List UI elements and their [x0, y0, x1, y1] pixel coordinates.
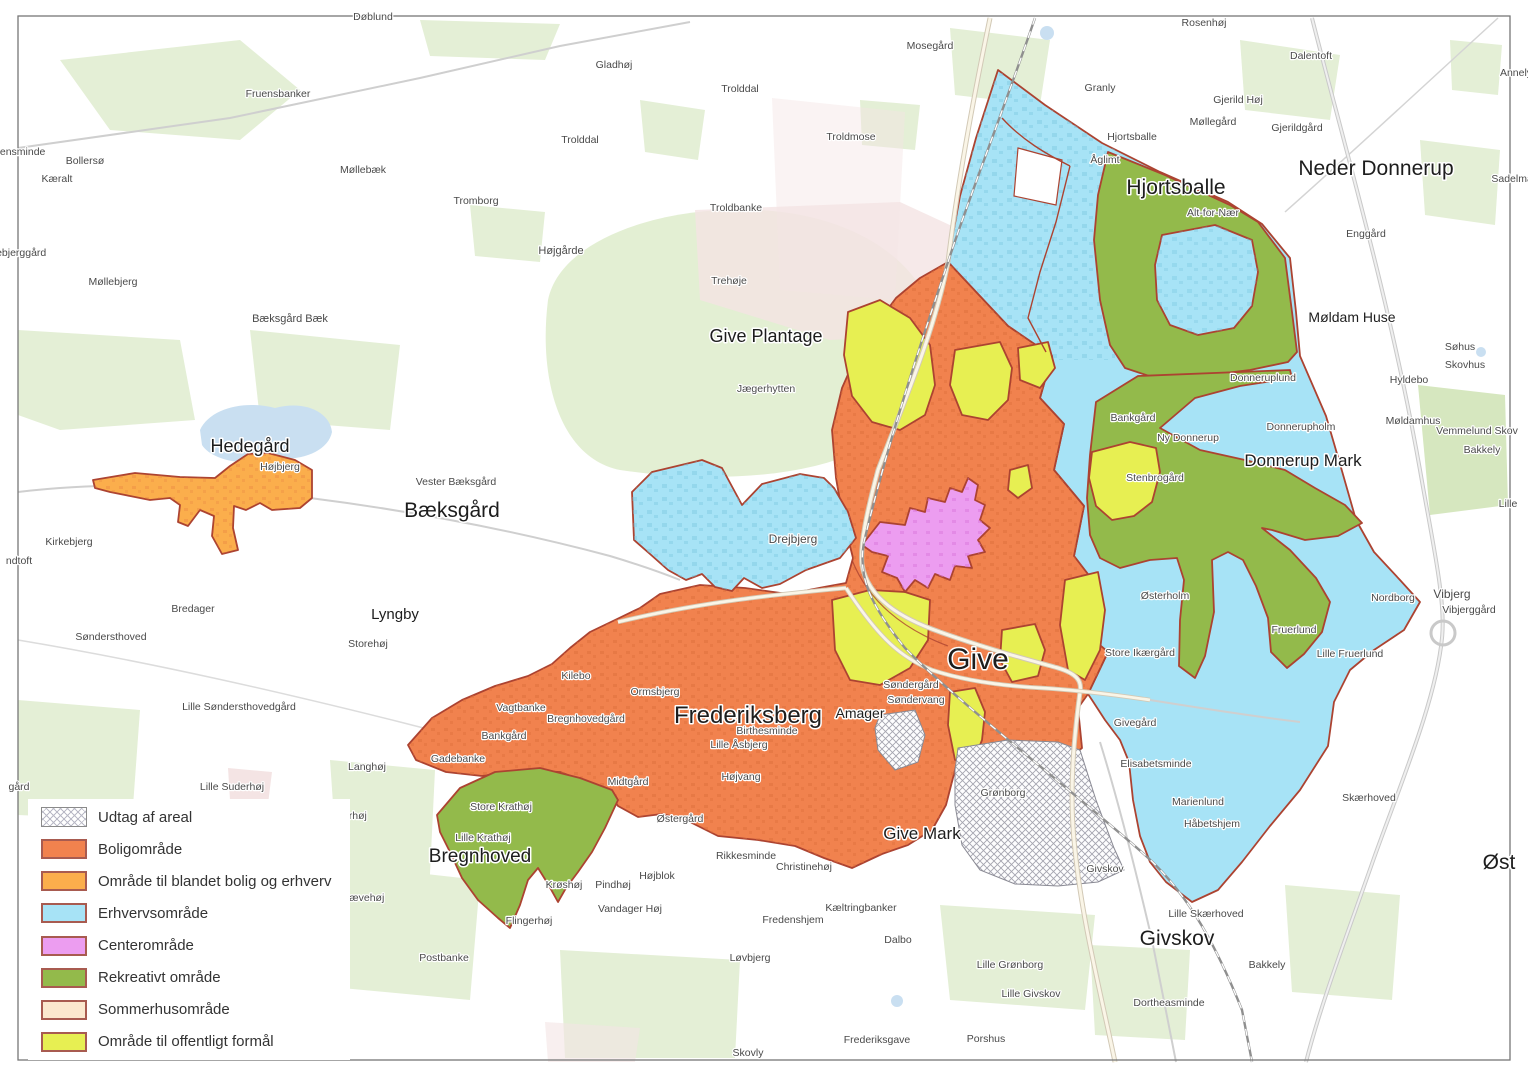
- place-label: Givskov: [1086, 863, 1124, 875]
- place-label: Hedegård: [210, 436, 289, 456]
- place-label: Lille Krathøj: [455, 832, 510, 844]
- legend-label-udtag: Udtag af areal: [98, 809, 192, 826]
- place-label: Ormsbjerg: [630, 686, 679, 698]
- legend-label-blandet: Område til blandet bolig og erhverv: [98, 873, 331, 890]
- place-label: kensminde: [0, 146, 46, 158]
- place-label: Neder Donnerup: [1298, 157, 1453, 180]
- legend-swatch-center: [41, 936, 87, 956]
- place-label: Lille Suderhøj: [200, 781, 264, 793]
- place-label: Højgårde: [538, 245, 583, 257]
- place-label: Bankgård: [1111, 412, 1156, 424]
- place-label: Lyngby: [371, 606, 419, 623]
- place-label: Givskov: [1140, 927, 1215, 950]
- place-label: Bollersø: [66, 155, 105, 167]
- place-label: Møllebæk: [340, 164, 387, 176]
- place-label: Vagtbanke: [496, 702, 546, 714]
- place-label: Give Plantage: [709, 326, 822, 346]
- place-label: Donnerupholm: [1267, 421, 1336, 433]
- place-label: Dortheasminde: [1133, 997, 1204, 1009]
- place-label: Kilebo: [561, 670, 590, 682]
- place-label: Vandager Høj: [598, 903, 662, 915]
- place-label: Postbanke: [419, 952, 469, 964]
- place-label: Bæksgård Bæk: [252, 313, 328, 325]
- place-label: Dalbo: [884, 934, 912, 946]
- place-label: Alt-for-Nær: [1187, 207, 1239, 219]
- place-label: Skovly: [733, 1047, 765, 1059]
- place-label: Døblund: [353, 11, 393, 23]
- place-label: Søhus: [1445, 341, 1475, 353]
- map-stage: GiveFrederiksbergHjortsballeNeder Donner…: [0, 0, 1528, 1080]
- place-label: Vemmelund Skov: [1436, 425, 1518, 437]
- place-label: Lille Søndersthovedgård: [182, 701, 296, 713]
- place-label: Østergård: [657, 813, 704, 825]
- place-label: Hyldebo: [1390, 374, 1429, 386]
- place-label: Nordborg: [1371, 592, 1415, 604]
- legend-item-sommerhus: Sommerhusområde: [28, 996, 350, 1023]
- place-label: Hjortsballe: [1126, 176, 1225, 199]
- place-label: Birthesminde: [736, 725, 797, 737]
- place-label: Tromborg: [453, 195, 498, 207]
- place-label: Donnerup Mark: [1244, 451, 1362, 470]
- legend-label-sommerhus: Sommerhusområde: [98, 1001, 230, 1018]
- place-label: Lille Åsbjerg: [710, 738, 767, 751]
- place-label: Bredager: [171, 603, 215, 615]
- place-label: Troldmose: [826, 131, 875, 143]
- place-label: Bankgård: [482, 730, 527, 742]
- place-label: Kæralt: [42, 173, 73, 185]
- place-label: Vibjerggård: [1442, 604, 1496, 616]
- legend-label-rekreativ: Rekreativt område: [98, 969, 221, 986]
- legend-swatch-bolig: [41, 839, 87, 859]
- place-label: Bakkely: [1464, 444, 1502, 456]
- place-label: Krøshøj: [546, 879, 583, 891]
- place-label: Elisabetsminde: [1120, 758, 1191, 770]
- legend-item-rekreativ: Rekreativt område: [28, 964, 350, 991]
- place-label: Lille Grønborg: [977, 959, 1044, 971]
- place-label: Lille: [1499, 498, 1518, 510]
- place-label: Møllegård: [1190, 116, 1237, 128]
- place-label: Åglimt: [1090, 153, 1119, 166]
- place-label: Møllebjerg: [88, 276, 137, 288]
- place-label: Gladhøj: [596, 59, 633, 71]
- place-label: Løvbjerg: [730, 952, 771, 964]
- place-label: Rosenhøj: [1182, 17, 1227, 29]
- place-label: Gjerild Høj: [1213, 94, 1263, 106]
- place-label: Bakkely: [1249, 959, 1287, 971]
- place-label: Kirkebjerg: [45, 536, 92, 548]
- legend-label-erhverv: Erhvervsområde: [98, 905, 208, 922]
- place-label: Møldamhus: [1386, 415, 1441, 427]
- place-label: Amager: [835, 705, 884, 721]
- place-label: Donneruplund: [1230, 372, 1296, 384]
- place-label: Granly: [1085, 82, 1117, 94]
- place-label: Søndervang: [887, 694, 944, 706]
- place-label: Gjerildgård: [1271, 122, 1323, 134]
- place-label: Østerholm: [1141, 590, 1190, 602]
- place-label: ndtoft: [6, 555, 32, 567]
- place-label: Annely: [1500, 67, 1528, 79]
- place-label: Trolddal: [721, 83, 759, 95]
- legend-item-bolig: Boligområde: [28, 836, 350, 863]
- place-label: Bregnhoved: [429, 846, 531, 867]
- place-label: Hjortsballe: [1107, 131, 1157, 143]
- place-label: Troldbanke: [710, 202, 762, 214]
- legend-swatch-sommerhus: [41, 1000, 87, 1020]
- place-label: Marienlund: [1172, 796, 1224, 808]
- place-label: Lille Givskov: [1002, 988, 1062, 1000]
- legend-swatch-erhverv: [41, 903, 87, 923]
- legend: Udtag af arealBoligområdeOmråde til blan…: [28, 799, 350, 1060]
- place-label: Skærhoved: [1342, 792, 1396, 804]
- place-label: Kæltringbanker: [825, 902, 897, 914]
- place-label: Møldam Huse: [1308, 309, 1395, 325]
- place-label: Mosegård: [907, 40, 954, 52]
- legend-label-offentlig: Område til offentligt formål: [98, 1033, 274, 1050]
- place-label: Trolddal: [561, 134, 599, 146]
- place-label: lebjerggård: [0, 247, 46, 259]
- place-label: Øst: [1483, 851, 1516, 874]
- place-label: Store Ikærgård: [1105, 647, 1175, 659]
- place-label: Give: [947, 643, 1009, 676]
- place-label: Gadebanke: [431, 753, 485, 765]
- place-label: Fredenshjem: [762, 914, 824, 926]
- place-label: Håbetshjem: [1184, 818, 1240, 830]
- place-label: Højbjerg: [260, 461, 300, 473]
- place-label: Porshus: [967, 1033, 1006, 1045]
- place-label: Lille Fruerlund: [1317, 648, 1384, 660]
- place-label: Højblok: [639, 870, 675, 882]
- place-label: Bregnhovedgård: [547, 713, 625, 725]
- place-label: Langhøj: [348, 761, 386, 773]
- place-label: Stenbrogård: [1126, 472, 1184, 484]
- legend-label-center: Centerområde: [98, 937, 194, 954]
- legend-item-offentlig: Område til offentligt formål: [28, 1028, 350, 1055]
- place-label: Søndergård: [883, 679, 939, 691]
- place-label: Drejbjerg: [769, 532, 818, 546]
- place-label: Enggård: [1346, 228, 1386, 240]
- place-label: Give Mark: [883, 824, 961, 843]
- place-label: Dalentoft: [1290, 50, 1332, 62]
- place-label: Fruensbanker: [246, 88, 311, 100]
- place-label: Store Krathøj: [470, 801, 532, 813]
- legend-swatch-udtag: [41, 807, 87, 827]
- place-label: Skovhus: [1445, 359, 1485, 371]
- place-label: Lille Skærhoved: [1168, 908, 1243, 920]
- place-label: Givegård: [1114, 717, 1157, 729]
- place-label: Højvang: [721, 771, 760, 783]
- legend-swatch-rekreativ: [41, 968, 87, 988]
- place-label: Rikkesminde: [716, 850, 776, 862]
- place-label: Christinehøj: [776, 861, 832, 873]
- legend-item-udtag: Udtag af areal: [28, 804, 350, 831]
- place-label: Flingerhøj: [506, 915, 553, 927]
- legend-item-center: Centerområde: [28, 932, 350, 959]
- place-label: Vester Bæksgård: [416, 476, 497, 488]
- place-label: Midtgård: [608, 776, 649, 788]
- place-label: gård: [8, 781, 29, 793]
- legend-swatch-blandet: [41, 871, 87, 891]
- legend-swatch-offentlig: [41, 1032, 87, 1052]
- place-label: Frederiksgave: [844, 1034, 911, 1046]
- place-label: Fruerlund: [1272, 624, 1317, 636]
- place-label: Pindhøj: [595, 879, 631, 891]
- legend-item-erhverv: Erhvervsområde: [28, 900, 350, 927]
- place-label: Jægerhytten: [737, 383, 796, 395]
- place-label: Storehøj: [348, 638, 388, 650]
- place-label: Trehøje: [711, 275, 747, 287]
- legend-item-blandet: Område til blandet bolig og erhverv: [28, 868, 350, 895]
- place-label: Ny Donnerup: [1157, 432, 1219, 444]
- place-label: Søndersthoved: [75, 631, 146, 643]
- place-label: Bæksgård: [404, 499, 500, 522]
- place-label: Grønborg: [981, 787, 1026, 799]
- place-label: Sadelmag: [1491, 173, 1528, 185]
- place-label: Vibjerg: [1433, 587, 1470, 601]
- legend-label-bolig: Boligområde: [98, 841, 182, 858]
